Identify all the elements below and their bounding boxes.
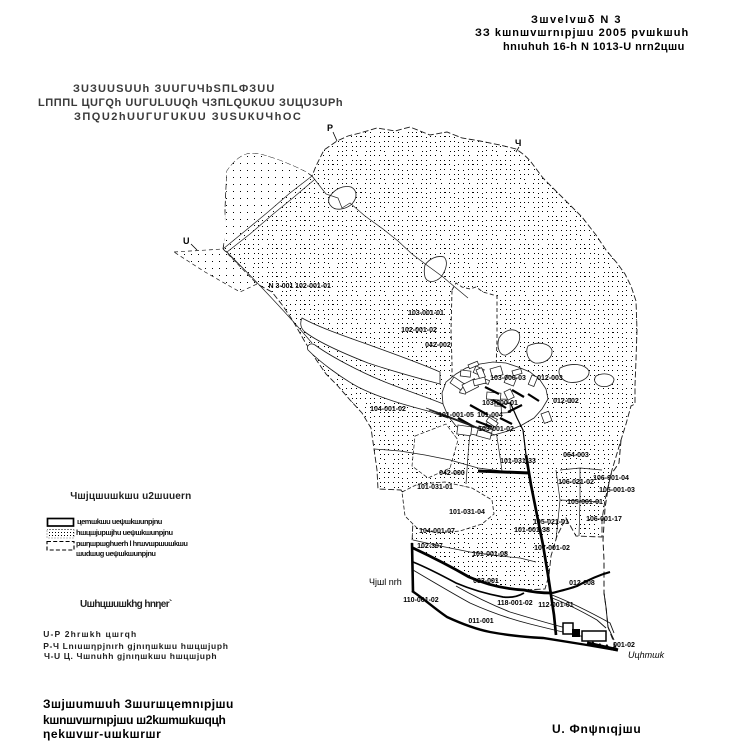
svg-text:042-000: 042-000 (439, 470, 465, 477)
svg-text:103-001-01: 103-001-01 (408, 310, 444, 317)
svg-text:106-021-02: 106-021-02 (558, 479, 594, 486)
svg-text:101-031-01: 101-031-01 (417, 484, 453, 491)
svg-text:103-000-03: 103-000-03 (490, 375, 526, 382)
svg-text:106-001-17: 106-001-17 (586, 516, 622, 523)
svg-text:042-002: 042-002 (425, 342, 451, 349)
svg-text:112-001-01: 112-001-01 (538, 602, 574, 609)
svg-text:102-307: 102-307 (417, 543, 443, 550)
svg-text:012-008: 012-008 (569, 580, 595, 587)
svg-text:105-001-03: 105-001-03 (599, 487, 635, 494)
svg-text:103-001-02: 103-001-02 (478, 426, 514, 433)
svg-text:118-001-02: 118-001-02 (497, 600, 533, 607)
svg-text:012-002: 012-002 (553, 398, 579, 405)
svg-text:Ч: Ч (515, 138, 521, 148)
svg-text:110-001-02: 110-001-02 (403, 597, 439, 604)
svg-text:102-001-01: 102-001-01 (295, 283, 331, 290)
svg-text:064-003: 064-003 (563, 452, 589, 459)
svg-text:P: P (327, 123, 333, 133)
svg-text:105-021-01: 105-021-01 (533, 519, 569, 526)
svg-text:101-001-08: 101-001-08 (472, 551, 508, 558)
svg-text:101-001-05: 101-001-05 (438, 412, 474, 419)
svg-text:107-001-02: 107-001-02 (534, 545, 570, 552)
svg-text:105-001-01: 105-001-01 (567, 499, 603, 506)
svg-text:U: U (183, 236, 190, 246)
svg-text:106-001-04: 106-001-04 (593, 475, 629, 482)
svg-text:012-003: 012-003 (537, 375, 563, 382)
svg-text:N 3-001: N 3-001 (269, 283, 294, 290)
svg-text:101-031-04: 101-031-04 (449, 509, 485, 516)
svg-text:104-001-02: 104-001-02 (370, 406, 406, 413)
svg-text:Uцhmшk: Uцhmшk (628, 650, 665, 660)
svg-text:103-000-01: 103-000-01 (482, 400, 518, 407)
svg-text:101-004: 101-004 (477, 412, 503, 419)
svg-text:001-02: 001-02 (613, 642, 635, 649)
svg-text:101-031-33: 101-031-33 (500, 458, 536, 465)
svg-text:104-001-07: 104-001-07 (419, 528, 455, 535)
svg-text:011-001: 011-001 (468, 618, 493, 625)
svg-text:102-001-02: 102-001-02 (401, 327, 437, 334)
svg-text:033-001: 033-001 (473, 578, 499, 585)
svg-text:Чjшl nrh: Чjшl nrh (369, 577, 402, 587)
svg-text:101-001-38: 101-001-38 (514, 527, 550, 534)
